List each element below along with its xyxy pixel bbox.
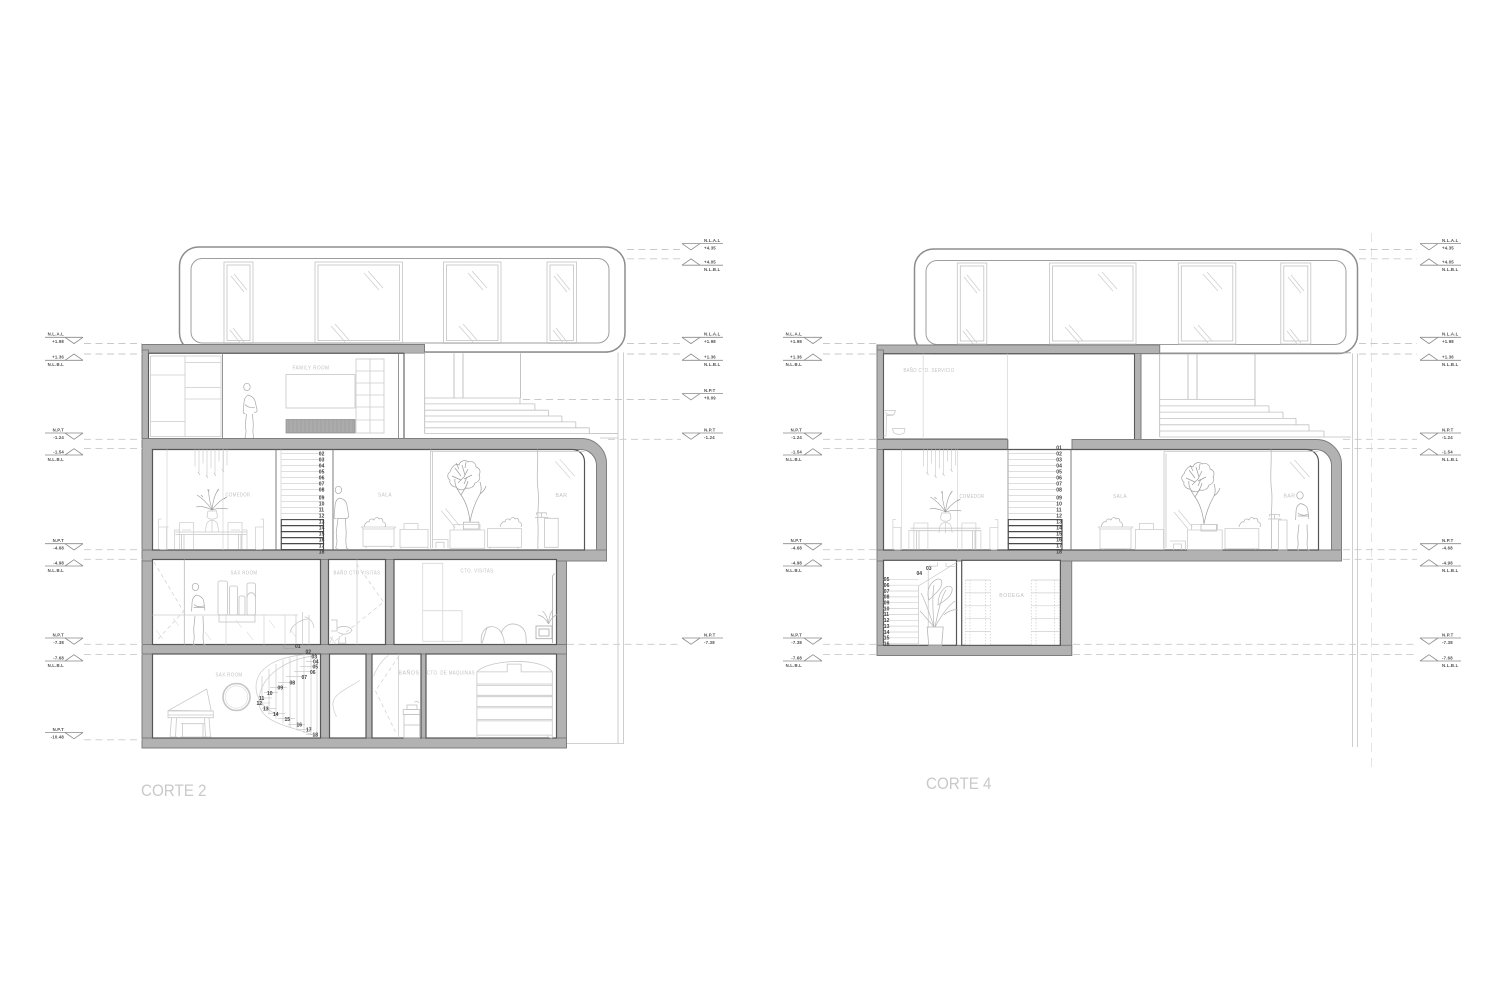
svg-text:SAX ROOM: SAX ROOM (231, 571, 258, 577)
svg-text:N.P.T: N.P.T (704, 632, 716, 637)
svg-text:N.L.A.L: N.L.A.L (704, 332, 721, 337)
svg-text:-4.98: -4.98 (791, 560, 802, 565)
svg-text:-1.54: -1.54 (791, 449, 802, 454)
svg-text:N.L.B.L: N.L.B.L (786, 568, 803, 573)
svg-text:+1.98: +1.98 (52, 339, 64, 344)
svg-text:-4.98: -4.98 (1442, 560, 1453, 565)
svg-text:N.P.T: N.P.T (1442, 538, 1454, 543)
svg-text:N.P.T: N.P.T (53, 538, 65, 543)
svg-text:BODEGA: BODEGA (999, 593, 1024, 599)
svg-text:N.L.A.L: N.L.A.L (48, 332, 65, 337)
svg-text:14: 14 (273, 712, 279, 718)
svg-text:CTO. DE MAQUINAS: CTO. DE MAQUINAS (427, 671, 475, 677)
svg-text:01: 01 (295, 644, 301, 650)
svg-text:+1.98: +1.98 (1442, 339, 1454, 344)
svg-text:-4.98: -4.98 (53, 560, 64, 565)
svg-text:-7.68: -7.68 (1442, 655, 1453, 660)
svg-text:08: 08 (290, 680, 296, 686)
svg-text:N.L.B.L: N.L.B.L (786, 457, 803, 462)
svg-text:N.L.B.L: N.L.B.L (786, 663, 803, 668)
svg-text:N.L.A.L: N.L.A.L (786, 332, 803, 337)
svg-text:N.L.A.L: N.L.A.L (1442, 238, 1459, 243)
svg-text:N.P.T: N.P.T (704, 388, 716, 393)
svg-text:N.L.B.L: N.L.B.L (704, 267, 721, 272)
svg-text:06: 06 (310, 670, 316, 676)
svg-text:+1.36: +1.36 (1442, 355, 1454, 360)
svg-text:N.L.B.L: N.L.B.L (48, 568, 65, 573)
svg-text:12: 12 (257, 701, 263, 707)
svg-text:09: 09 (278, 686, 284, 692)
svg-text:N.L.B.L: N.L.B.L (786, 362, 803, 367)
svg-text:-4.68: -4.68 (53, 546, 64, 551)
svg-text:BAÑOS: BAÑOS (399, 670, 420, 677)
svg-text:+0.09: +0.09 (704, 396, 716, 401)
svg-text:+1.98: +1.98 (704, 339, 716, 344)
svg-text:CORTE 2: CORTE 2 (141, 782, 207, 800)
svg-text:+4.05: +4.05 (1442, 260, 1454, 265)
svg-text:08: 08 (1056, 487, 1062, 493)
svg-text:-7.38: -7.38 (53, 640, 64, 645)
svg-text:+1.36: +1.36 (52, 355, 64, 360)
svg-text:-1.24: -1.24 (791, 435, 802, 440)
svg-text:N.P.T: N.P.T (1442, 427, 1454, 432)
svg-text:N.L.A.L: N.L.A.L (1442, 332, 1459, 337)
svg-text:N.L.B.L: N.L.B.L (1442, 568, 1459, 573)
svg-text:N.P.T: N.P.T (704, 427, 716, 432)
svg-text:+1.98: +1.98 (790, 339, 802, 344)
svg-text:16: 16 (884, 642, 890, 648)
svg-text:17: 17 (306, 727, 312, 733)
svg-text:N.P.T: N.P.T (53, 632, 65, 637)
svg-text:10: 10 (267, 691, 273, 697)
svg-text:N.L.B.L: N.L.B.L (48, 663, 65, 668)
svg-text:15: 15 (285, 717, 291, 723)
svg-text:CORTE 4: CORTE 4 (926, 775, 992, 793)
svg-text:08: 08 (319, 487, 325, 493)
svg-text:+4.35: +4.35 (704, 246, 716, 251)
svg-text:N.L.B.L: N.L.B.L (1442, 457, 1459, 462)
svg-text:N.L.B.L: N.L.B.L (704, 362, 721, 367)
svg-text:18: 18 (1056, 549, 1062, 555)
svg-text:04: 04 (917, 571, 923, 577)
svg-text:N.P.T: N.P.T (791, 632, 803, 637)
svg-text:-1.24: -1.24 (704, 435, 715, 440)
svg-text:BAR: BAR (1284, 494, 1296, 500)
svg-text:-7.38: -7.38 (1442, 640, 1453, 645)
svg-text:-7.68: -7.68 (53, 655, 64, 660)
svg-text:-1.24: -1.24 (53, 435, 64, 440)
svg-text:SALA: SALA (378, 493, 392, 499)
svg-text:CTO. VISITAS: CTO. VISITAS (461, 569, 494, 575)
svg-text:-7.68: -7.68 (791, 655, 802, 660)
svg-text:-7.38: -7.38 (791, 640, 802, 645)
svg-text:-1.54: -1.54 (53, 449, 64, 454)
svg-text:-10.48: -10.48 (51, 734, 65, 739)
svg-text:SAX ROOM: SAX ROOM (216, 673, 243, 679)
svg-text:+1.36: +1.36 (704, 355, 716, 360)
svg-text:N.L.B.L: N.L.B.L (1442, 663, 1459, 668)
svg-text:N.P.T: N.P.T (1442, 632, 1454, 637)
svg-text:N.L.B.L: N.L.B.L (1442, 362, 1459, 367)
svg-text:-1.54: -1.54 (1442, 449, 1453, 454)
svg-text:07: 07 (302, 675, 308, 681)
svg-text:N.L.A.L: N.L.A.L (704, 238, 721, 243)
svg-text:18: 18 (313, 733, 319, 739)
svg-text:N.L.B.L: N.L.B.L (1442, 267, 1459, 272)
svg-text:-1.24: -1.24 (1442, 435, 1453, 440)
svg-text:BAR: BAR (556, 493, 568, 499)
svg-text:N.P.T: N.P.T (791, 538, 803, 543)
svg-text:FAMILY ROOM: FAMILY ROOM (293, 366, 330, 372)
svg-text:COMEDOR: COMEDOR (960, 494, 985, 500)
svg-text:18: 18 (319, 549, 325, 555)
svg-text:N.P.T: N.P.T (791, 427, 803, 432)
svg-text:N.P.T: N.P.T (53, 427, 65, 432)
svg-text:SALA: SALA (1113, 494, 1127, 500)
svg-text:13: 13 (263, 706, 269, 712)
svg-text:-4.68: -4.68 (791, 546, 802, 551)
svg-text:16: 16 (297, 722, 303, 728)
svg-text:+4.35: +4.35 (1442, 246, 1454, 251)
svg-text:N.L.B.L: N.L.B.L (48, 362, 65, 367)
svg-text:N.L.B.L: N.L.B.L (48, 457, 65, 462)
svg-text:-7.38: -7.38 (704, 640, 715, 645)
svg-text:COMEDOR: COMEDOR (226, 493, 251, 499)
svg-text:-4.68: -4.68 (1442, 546, 1453, 551)
svg-text:+1.36: +1.36 (790, 355, 802, 360)
svg-text:03: 03 (926, 566, 932, 572)
svg-text:N.P.T: N.P.T (53, 727, 65, 732)
svg-text:+4.05: +4.05 (704, 260, 716, 265)
svg-text:BAÑO CTO. SERVICIO: BAÑO CTO. SERVICIO (904, 367, 955, 374)
